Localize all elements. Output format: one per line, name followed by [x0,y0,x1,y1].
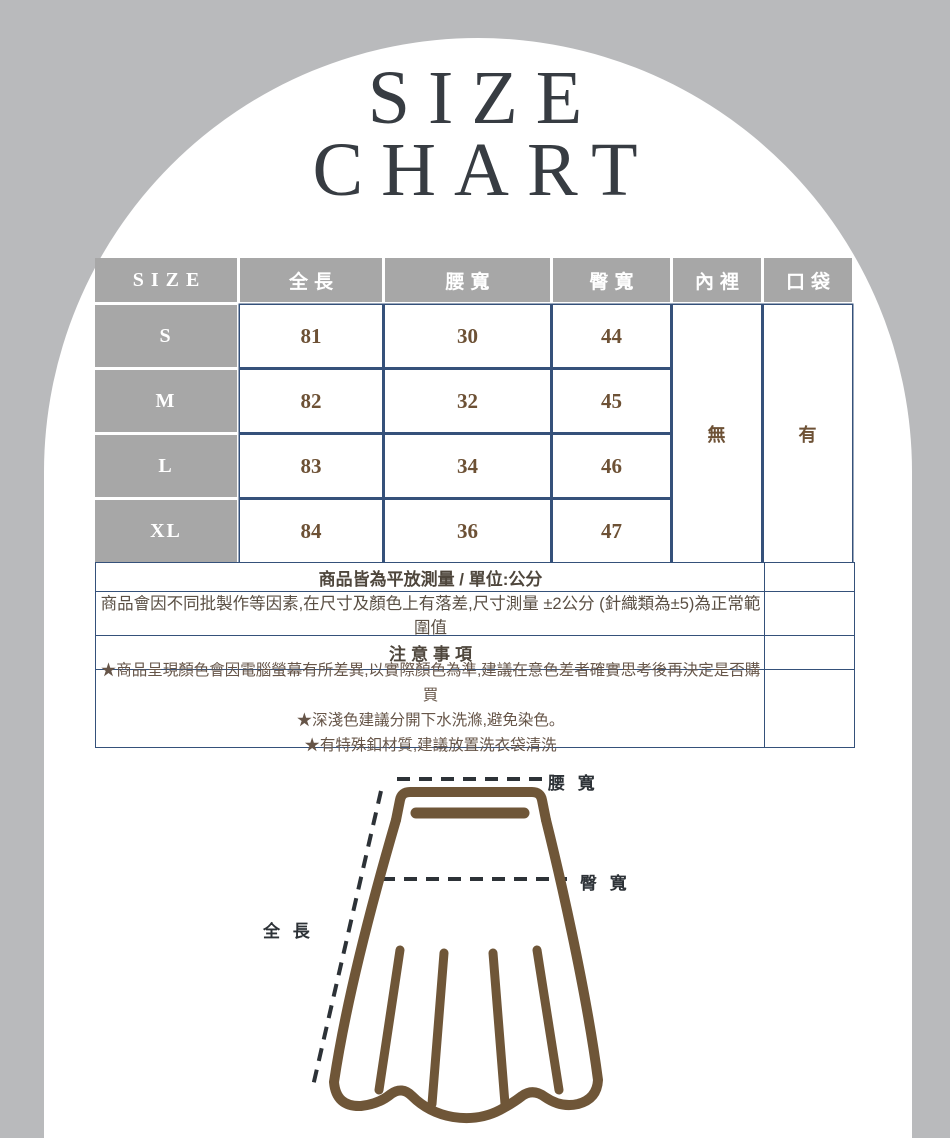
value-s-hip: 44 [553,305,670,367]
value-s-full-length: 81 [240,305,382,367]
skirt-diagram [250,750,670,1138]
waist-measure-label: 腰 寬 [548,769,599,794]
tolerance-note-row: 商品會因不同批製作等因素,在尺寸及顏色上有落差,尺寸測量 ±2公分 (針織類為±… [96,592,854,636]
attention-items-row: ★商品呈現顏色會因電腦螢幕有所差異,以實際顏色為準,建議在意色差者確實思考後再決… [96,670,854,745]
measure-note-text: 商品皆為平放測量 / 單位: [319,570,509,589]
skirt-pleat-line [493,953,505,1104]
length-dashed-line [313,791,381,1086]
measure-note-row: 商品皆為平放測量 / 單位:公分 [96,563,854,592]
page-title-line2: CHART [0,134,950,206]
value-s-waist: 30 [385,305,550,367]
value-l-waist: 34 [385,435,550,497]
value-xl-hip: 47 [553,500,670,562]
attention-items: ★商品呈現顏色會因電腦螢幕有所差異,以實際顏色為準,建議在意色差者確實思考後再決… [97,658,765,758]
value-l-hip: 46 [553,435,670,497]
value-l-full-length: 83 [240,435,382,497]
skirt-pleat-line [537,950,559,1090]
page-title: SIZE CHART [0,62,950,206]
column-header-size: SIZE [95,258,237,302]
column-header-full-length: 全長 [240,258,382,302]
column-header-waist: 腰寬 [385,258,550,302]
column-header-lining: 內裡 [673,258,761,302]
measure-note-unit: 公分 [508,570,542,589]
column-header-pocket: 口袋 [764,258,852,302]
attention-item: ★商品呈現顏色會因電腦螢幕有所差異,以實際顏色為準,建議在意色差者確實思考後再決… [97,658,765,708]
size-label-s: S [95,305,237,367]
length-measure-label: 全 長 [263,917,314,942]
attention-item: ★深淺色建議分開下水洗滌,避免染色。 [97,708,765,733]
value-m-hip: 45 [553,370,670,432]
skirt-pleat-line [379,950,400,1090]
value-lining: 無 [673,305,761,562]
notes-block: 商品皆為平放測量 / 單位:公分 商品會因不同批製作等因素,在尺寸及顏色上有落差… [95,562,855,748]
value-m-full-length: 82 [240,370,382,432]
value-xl-waist: 36 [385,500,550,562]
size-chart-page: { "title": { "line1": "SIZE", "line2": "… [0,0,950,1138]
value-xl-full-length: 84 [240,500,382,562]
measure-note: 商品皆為平放測量 / 單位:公分 [97,565,765,590]
value-m-waist: 32 [385,370,550,432]
size-label-xl: XL [95,500,237,562]
tolerance-note: 商品會因不同批製作等因素,在尺寸及顏色上有落差,尺寸測量 ±2公分 (針織類為±… [97,590,765,638]
size-label-m: M [95,370,237,432]
page-title-line1: SIZE [0,62,950,134]
skirt-pleat-line [432,953,444,1104]
column-header-hip: 臀寬 [553,258,670,302]
value-pocket: 有 [764,305,852,562]
hip-measure-label: 臀 寬 [580,869,631,894]
size-table: SIZE 全長 腰寬 臀寬 內裡 口袋 S 81 30 44 無 有 M 82 … [95,258,855,562]
size-label-l: L [95,435,237,497]
